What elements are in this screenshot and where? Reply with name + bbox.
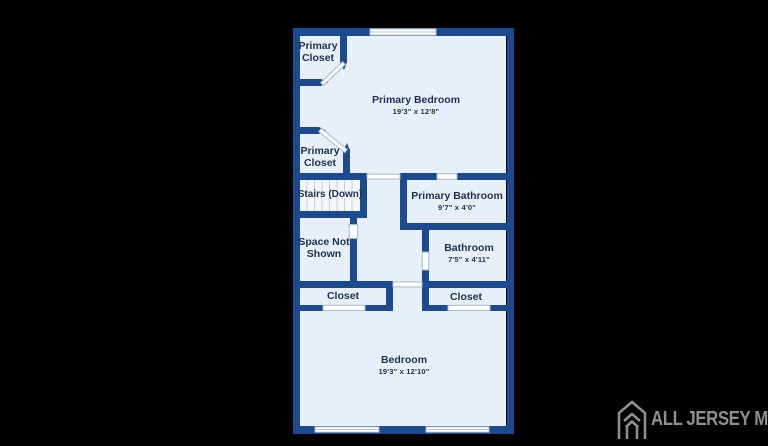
room-name: Space Not Shown bbox=[292, 236, 356, 260]
house-logo-icon bbox=[615, 399, 649, 439]
watermark-text: ALL JERSEY MLS bbox=[651, 407, 768, 431]
closet-right-door bbox=[448, 305, 490, 310]
window-bottom-right bbox=[426, 427, 489, 432]
room-dims: 7'5" x 4'11" bbox=[424, 255, 514, 264]
room-dims: 9'7" x 4'0" bbox=[402, 203, 512, 212]
room-name: Closet bbox=[436, 291, 496, 303]
room-dims: 19'3" x 12'8" bbox=[356, 107, 476, 116]
room-label-primary-bedroom: Primary Bedroom 19'3" x 12'8" bbox=[356, 94, 476, 116]
hall-opening bbox=[367, 174, 400, 179]
closet-left-door bbox=[323, 305, 365, 310]
room-dims: 19'3" x 12'10" bbox=[349, 367, 459, 376]
room-name: Primary Bedroom bbox=[356, 94, 476, 106]
room-label-space-not-shown: Space Not Shown bbox=[292, 236, 356, 260]
room-label-closet-left: Closet bbox=[313, 290, 373, 302]
watermark: ALL JERSEY MLS bbox=[615, 398, 765, 440]
window-bottom-left bbox=[315, 427, 379, 432]
room-name: Bathroom bbox=[424, 242, 514, 254]
room-label-primary-closet-mid: Primary Closet bbox=[290, 145, 350, 169]
room-name: Primary Closet bbox=[290, 145, 350, 169]
room-name: Bedroom bbox=[349, 354, 459, 366]
room-label-closet-right: Closet bbox=[436, 291, 496, 303]
room-name: Stairs (Down) bbox=[285, 189, 375, 201]
room-label-bathroom: Bathroom 7'5" x 4'11" bbox=[424, 242, 514, 264]
room-name: Primary Bathroom bbox=[402, 190, 512, 202]
room-name: Primary Closet bbox=[288, 40, 348, 64]
floorplan-graphic bbox=[0, 0, 768, 446]
bedroom-opening bbox=[393, 282, 422, 287]
room-label-bedroom: Bedroom 19'3" x 12'10" bbox=[349, 354, 459, 376]
room-name: Closet bbox=[313, 290, 373, 302]
window-top bbox=[370, 29, 436, 35]
room-label-primary-closet-top: Primary Closet bbox=[288, 40, 348, 64]
screenshot-canvas: { "background_color": "#000000", "plan":… bbox=[0, 0, 768, 446]
room-label-primary-bathroom: Primary Bathroom 9'7" x 4'0" bbox=[402, 190, 512, 212]
room-label-stairs: Stairs (Down) bbox=[285, 189, 375, 201]
primary-bathroom-door bbox=[437, 174, 457, 180]
